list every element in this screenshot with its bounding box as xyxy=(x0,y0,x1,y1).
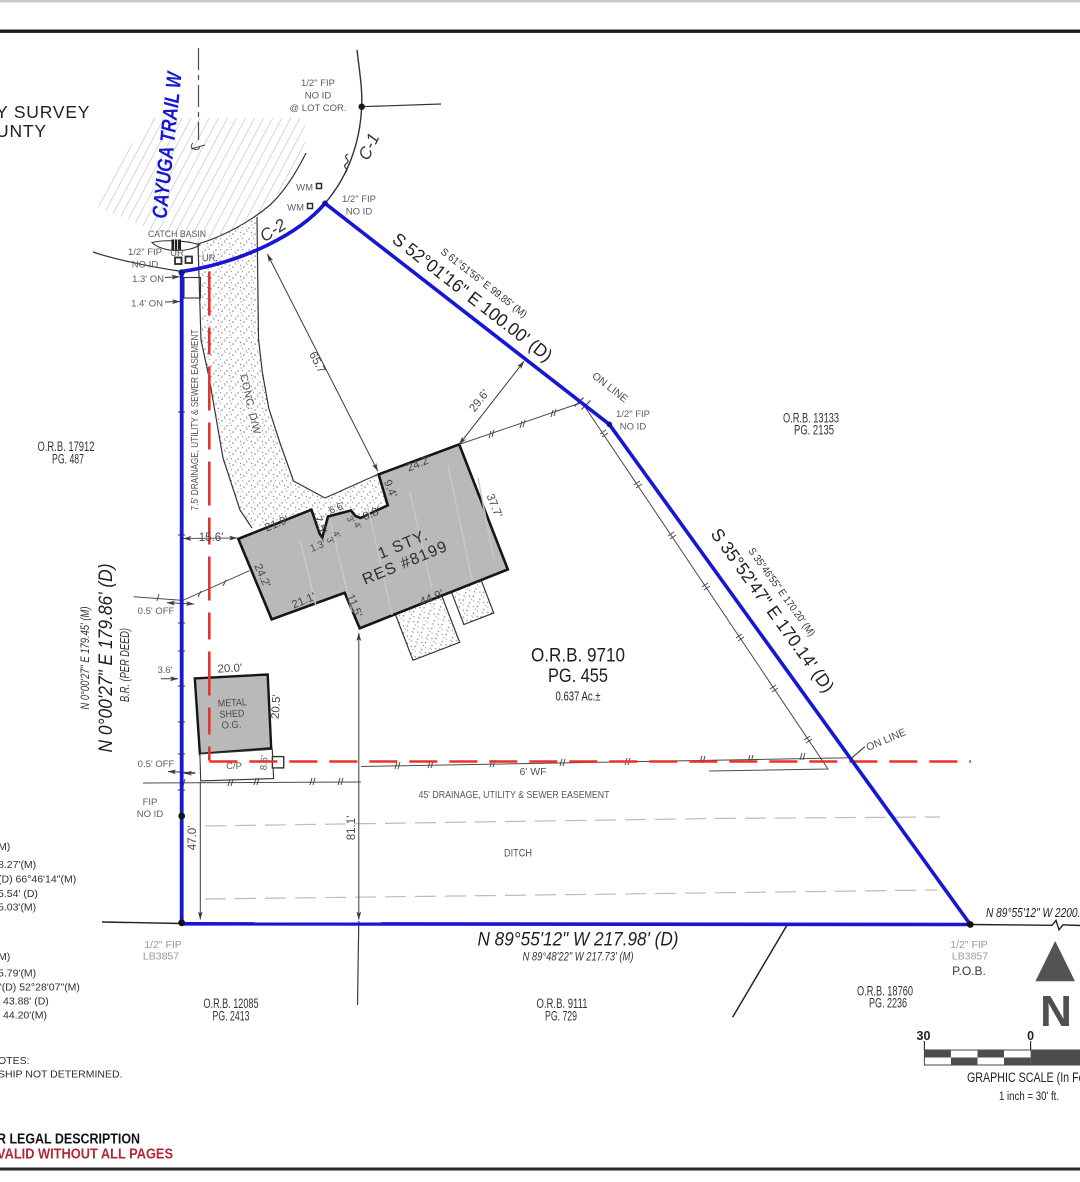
svg-text:PG. 2236: PG. 2236 xyxy=(869,996,907,1011)
svg-text:N 0°00'27" E 179.86' (D): N 0°00'27" E 179.86' (D) xyxy=(96,564,117,753)
svg-text:PG. 2413: PG. 2413 xyxy=(213,1009,250,1024)
svg-text:0.5' OFF: 0.5' OFF xyxy=(138,759,175,770)
svg-text:5.03'(M): 5.03'(M) xyxy=(0,902,36,914)
svg-text:WM: WM xyxy=(296,183,313,194)
svg-text:8.27'(M): 8.27'(M) xyxy=(0,859,36,871)
svg-text:1/2" FIP: 1/2" FIP xyxy=(616,409,650,420)
svg-text:FIP: FIP xyxy=(143,797,158,808)
svg-text:1/2" FIP: 1/2" FIP xyxy=(950,939,988,951)
svg-text:0.637 Ac.±: 0.637 Ac.± xyxy=(556,689,601,704)
svg-text:O.R.B. 9710: O.R.B. 9710 xyxy=(531,645,625,667)
svg-text:N 89°48'22" W 217.73' (M): N 89°48'22" W 217.73' (M) xyxy=(523,952,634,964)
svg-text:1 inch = 30' ft.: 1 inch = 30' ft. xyxy=(999,1091,1059,1103)
svg-text:20.5': 20.5' xyxy=(270,694,284,719)
svg-text:8.6': 8.6' xyxy=(258,755,270,771)
svg-text:30: 30 xyxy=(917,1029,931,1043)
svg-text:5.79'(M): 5.79'(M) xyxy=(0,968,36,980)
svg-text:C/P: C/P xyxy=(226,761,242,772)
svg-text:DITCH: DITCH xyxy=(504,848,532,860)
svg-text:5.54' (D): 5.54' (D) xyxy=(0,888,38,900)
svg-text:47.0': 47.0' xyxy=(187,826,199,851)
svg-text:N 89°55'12" W 2200.9: N 89°55'12" W 2200.9 xyxy=(986,905,1080,920)
svg-text:GRAPHIC SCALE (In Feet): GRAPHIC SCALE (In Feet) xyxy=(967,1070,1080,1085)
svg-text:PG. 487: PG. 487 xyxy=(52,452,84,467)
svg-text:3.6': 3.6' xyxy=(157,665,172,676)
svg-text:44.20'(M): 44.20'(M) xyxy=(3,1010,47,1022)
svg-text:NO ID: NO ID xyxy=(620,422,647,433)
svg-text:LB3857: LB3857 xyxy=(143,951,179,963)
svg-text:WM: WM xyxy=(287,203,304,214)
svg-text:R LEGAL DESCRIPTION: R LEGAL DESCRIPTION xyxy=(0,1132,140,1148)
svg-text:NO ID: NO ID xyxy=(132,260,159,271)
svg-text:Y SURVEY: Y SURVEY xyxy=(0,102,90,122)
svg-text:81.1': 81.1' xyxy=(346,816,358,841)
svg-text:SHIP NOT DETERMINED.: SHIP NOT DETERMINED. xyxy=(0,1069,122,1081)
svg-text:NO ID: NO ID xyxy=(137,809,164,820)
svg-text:VALID WITHOUT ALL PAGES: VALID WITHOUT ALL PAGES xyxy=(0,1147,173,1163)
svg-text:P.O.B.: P.O.B. xyxy=(952,964,986,978)
svg-text:PG. 729: PG. 729 xyxy=(545,1009,577,1024)
svg-text:B.R. (PER DEED): B.R. (PER DEED) xyxy=(117,628,132,702)
svg-text:"(D) 52°28'07"(M): "(D) 52°28'07"(M) xyxy=(0,982,80,994)
svg-text:45' DRAINAGE, UTILITY & SEWER: 45' DRAINAGE, UTILITY & SEWER EASEMENT xyxy=(419,789,610,801)
svg-text:1/2" FIP: 1/2" FIP xyxy=(144,939,182,951)
svg-text:M): M) xyxy=(0,951,10,963)
svg-text:1.4' ON: 1.4' ON xyxy=(131,299,163,310)
svg-text:15.6': 15.6' xyxy=(199,532,224,544)
svg-text:N: N xyxy=(1040,987,1072,1036)
svg-text:@ LOT COR.: @ LOT COR. xyxy=(290,103,347,114)
svg-text:CATCH BASIN: CATCH BASIN xyxy=(148,229,206,240)
svg-text:6' WF: 6' WF xyxy=(519,766,546,778)
svg-text:N 89°55'12" W 217.98' (D): N 89°55'12" W 217.98' (D) xyxy=(478,930,679,951)
svg-text:NO ID: NO ID xyxy=(305,91,332,102)
svg-text:1/2" FIP: 1/2" FIP xyxy=(342,194,376,205)
svg-text:UR.: UR. xyxy=(202,253,218,264)
svg-text:PG. 455: PG. 455 xyxy=(548,665,608,687)
svg-text:PG. 2135: PG. 2135 xyxy=(794,423,834,438)
svg-text:(D) 66°46'14"(M): (D) 66°46'14"(M) xyxy=(0,874,76,886)
svg-text:1/2" FIP: 1/2" FIP xyxy=(301,78,335,89)
svg-text:O.G.: O.G. xyxy=(221,720,242,732)
svg-text:LB3857: LB3857 xyxy=(952,951,988,963)
svg-text:43.88' (D): 43.88' (D) xyxy=(3,996,49,1008)
svg-text:1/2" FIP: 1/2" FIP xyxy=(128,247,162,258)
svg-text:OTES:: OTES: xyxy=(0,1055,30,1067)
svg-text:20.0': 20.0' xyxy=(217,662,242,675)
svg-text:NO ID: NO ID xyxy=(346,207,373,218)
svg-text:0.5' OFF: 0.5' OFF xyxy=(138,606,175,617)
svg-text:UNTY: UNTY xyxy=(0,121,47,141)
svg-text:7.5' DRAINAGE, UTILITY & SEWER: 7.5' DRAINAGE, UTILITY & SEWER EASEMENT xyxy=(190,330,201,511)
svg-text:M): M) xyxy=(0,841,10,853)
svg-text:N 0°00'27" E 179.45' (M): N 0°00'27" E 179.45' (M) xyxy=(80,606,92,709)
svg-text:0: 0 xyxy=(1027,1029,1034,1043)
svg-text:1.3' ON: 1.3' ON xyxy=(132,274,164,285)
